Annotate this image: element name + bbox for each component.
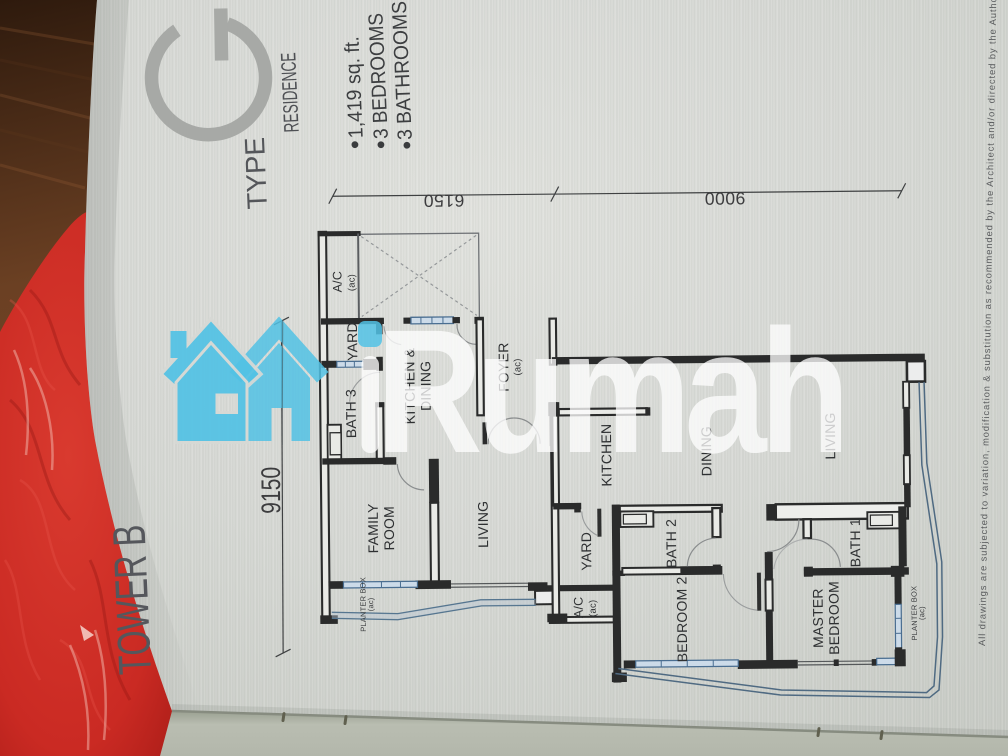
svg-text:(ac): (ac) xyxy=(366,597,375,611)
svg-text:MASTER: MASTER xyxy=(810,588,827,648)
svg-text:BATH 1: BATH 1 xyxy=(847,518,863,567)
svg-text:TOWER B: TOWER B xyxy=(102,524,160,676)
svg-text:YARD: YARD xyxy=(578,532,594,571)
svg-text:LIVING: LIVING xyxy=(475,501,491,548)
svg-text:(ac): (ac) xyxy=(917,606,926,620)
svg-text:RESIDENCE: RESIDENCE xyxy=(277,52,303,133)
svg-text:(ac): (ac) xyxy=(588,600,599,617)
svg-text:Rumah: Rumah xyxy=(376,294,843,490)
svg-text:ROOM: ROOM xyxy=(381,506,397,551)
svg-text:9000: 9000 xyxy=(704,188,745,208)
svg-text:(ac): (ac) xyxy=(346,274,357,291)
svg-text:TYPE: TYPE xyxy=(239,137,273,210)
svg-text:1,419 sq. ft.: 1,419 sq. ft. xyxy=(340,36,367,139)
svg-text:6150: 6150 xyxy=(423,190,464,210)
svg-text:BEDROOM 2: BEDROOM 2 xyxy=(673,576,690,662)
svg-text:BATH 2: BATH 2 xyxy=(663,519,679,568)
svg-text:YARD: YARD xyxy=(344,322,360,361)
svg-text:BEDROOM: BEDROOM xyxy=(825,581,842,655)
svg-text:9150: 9150 xyxy=(256,467,286,514)
svg-text:A/C: A/C xyxy=(572,597,586,619)
svg-text:A/C: A/C xyxy=(330,271,344,293)
svg-text:FAMILY: FAMILY xyxy=(365,503,381,554)
svg-text:BATH 3: BATH 3 xyxy=(343,389,359,438)
